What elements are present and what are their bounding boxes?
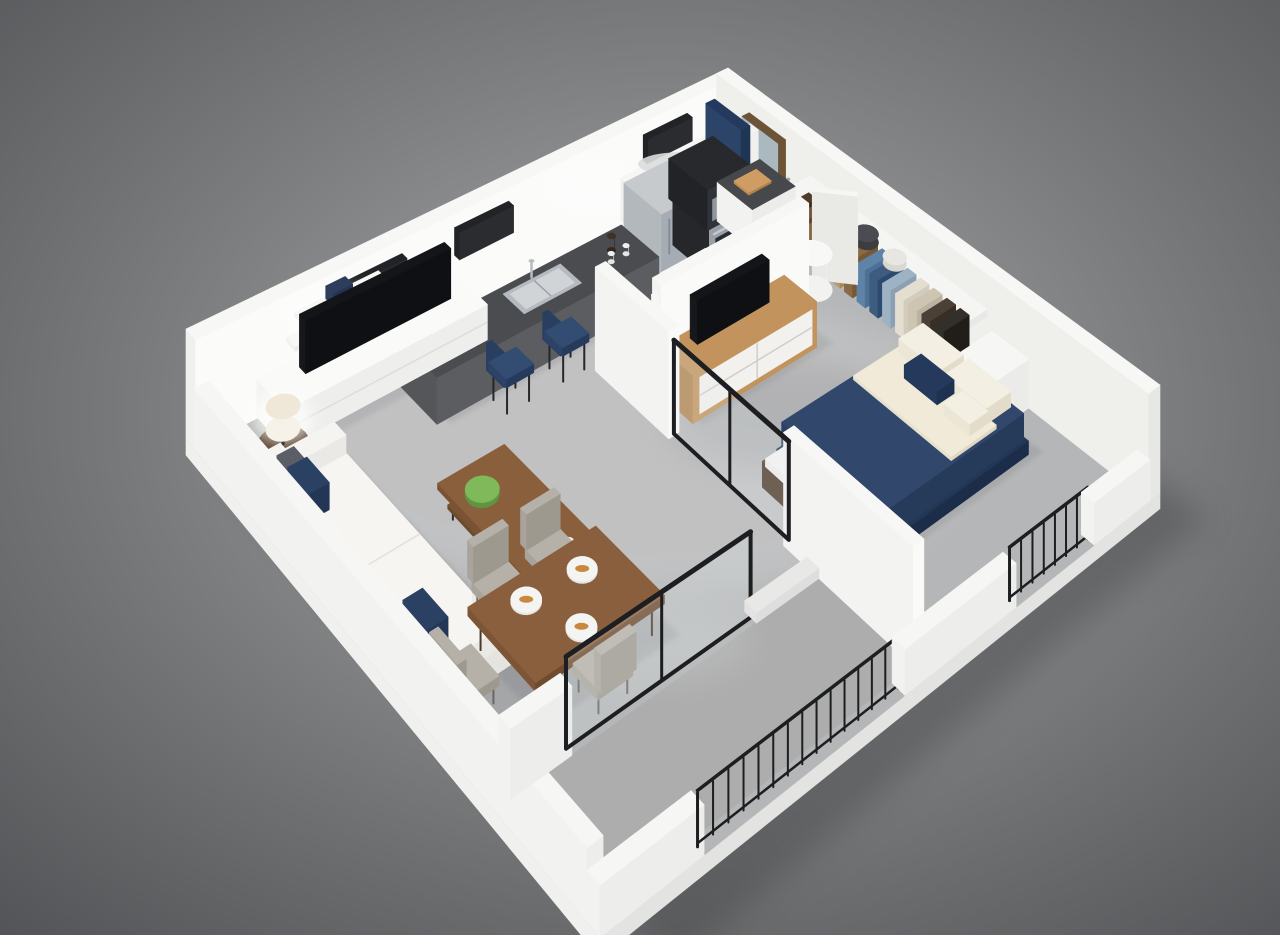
apartment-floorplan-screenshot xyxy=(0,0,1280,935)
food-2 xyxy=(575,565,589,572)
food-1 xyxy=(519,596,533,603)
hanging-clothes-8-left xyxy=(882,283,891,328)
closet-door-open-side1 xyxy=(812,191,857,285)
wine-bottle-top xyxy=(607,233,616,239)
hanging-clothes-7-left xyxy=(870,273,878,318)
food-3 xyxy=(574,623,588,630)
wine-glass-1-top xyxy=(608,251,614,255)
dining-low-wall-left xyxy=(499,715,511,799)
window-slit-2-left xyxy=(455,228,460,260)
hanging-clothes-9-left xyxy=(895,294,904,339)
hanging-clothes-6-left xyxy=(857,264,865,309)
living-tv-left xyxy=(299,314,305,374)
apartment-3d-floorplan-render xyxy=(0,0,1280,935)
chair-2-back-left xyxy=(521,508,527,550)
bedroom-tv-left xyxy=(690,295,697,345)
island-faucet-tip xyxy=(529,259,535,263)
green-bowl-top xyxy=(465,476,499,503)
wine-glass-2-top xyxy=(623,243,629,247)
chair-1-back-left xyxy=(468,540,474,583)
